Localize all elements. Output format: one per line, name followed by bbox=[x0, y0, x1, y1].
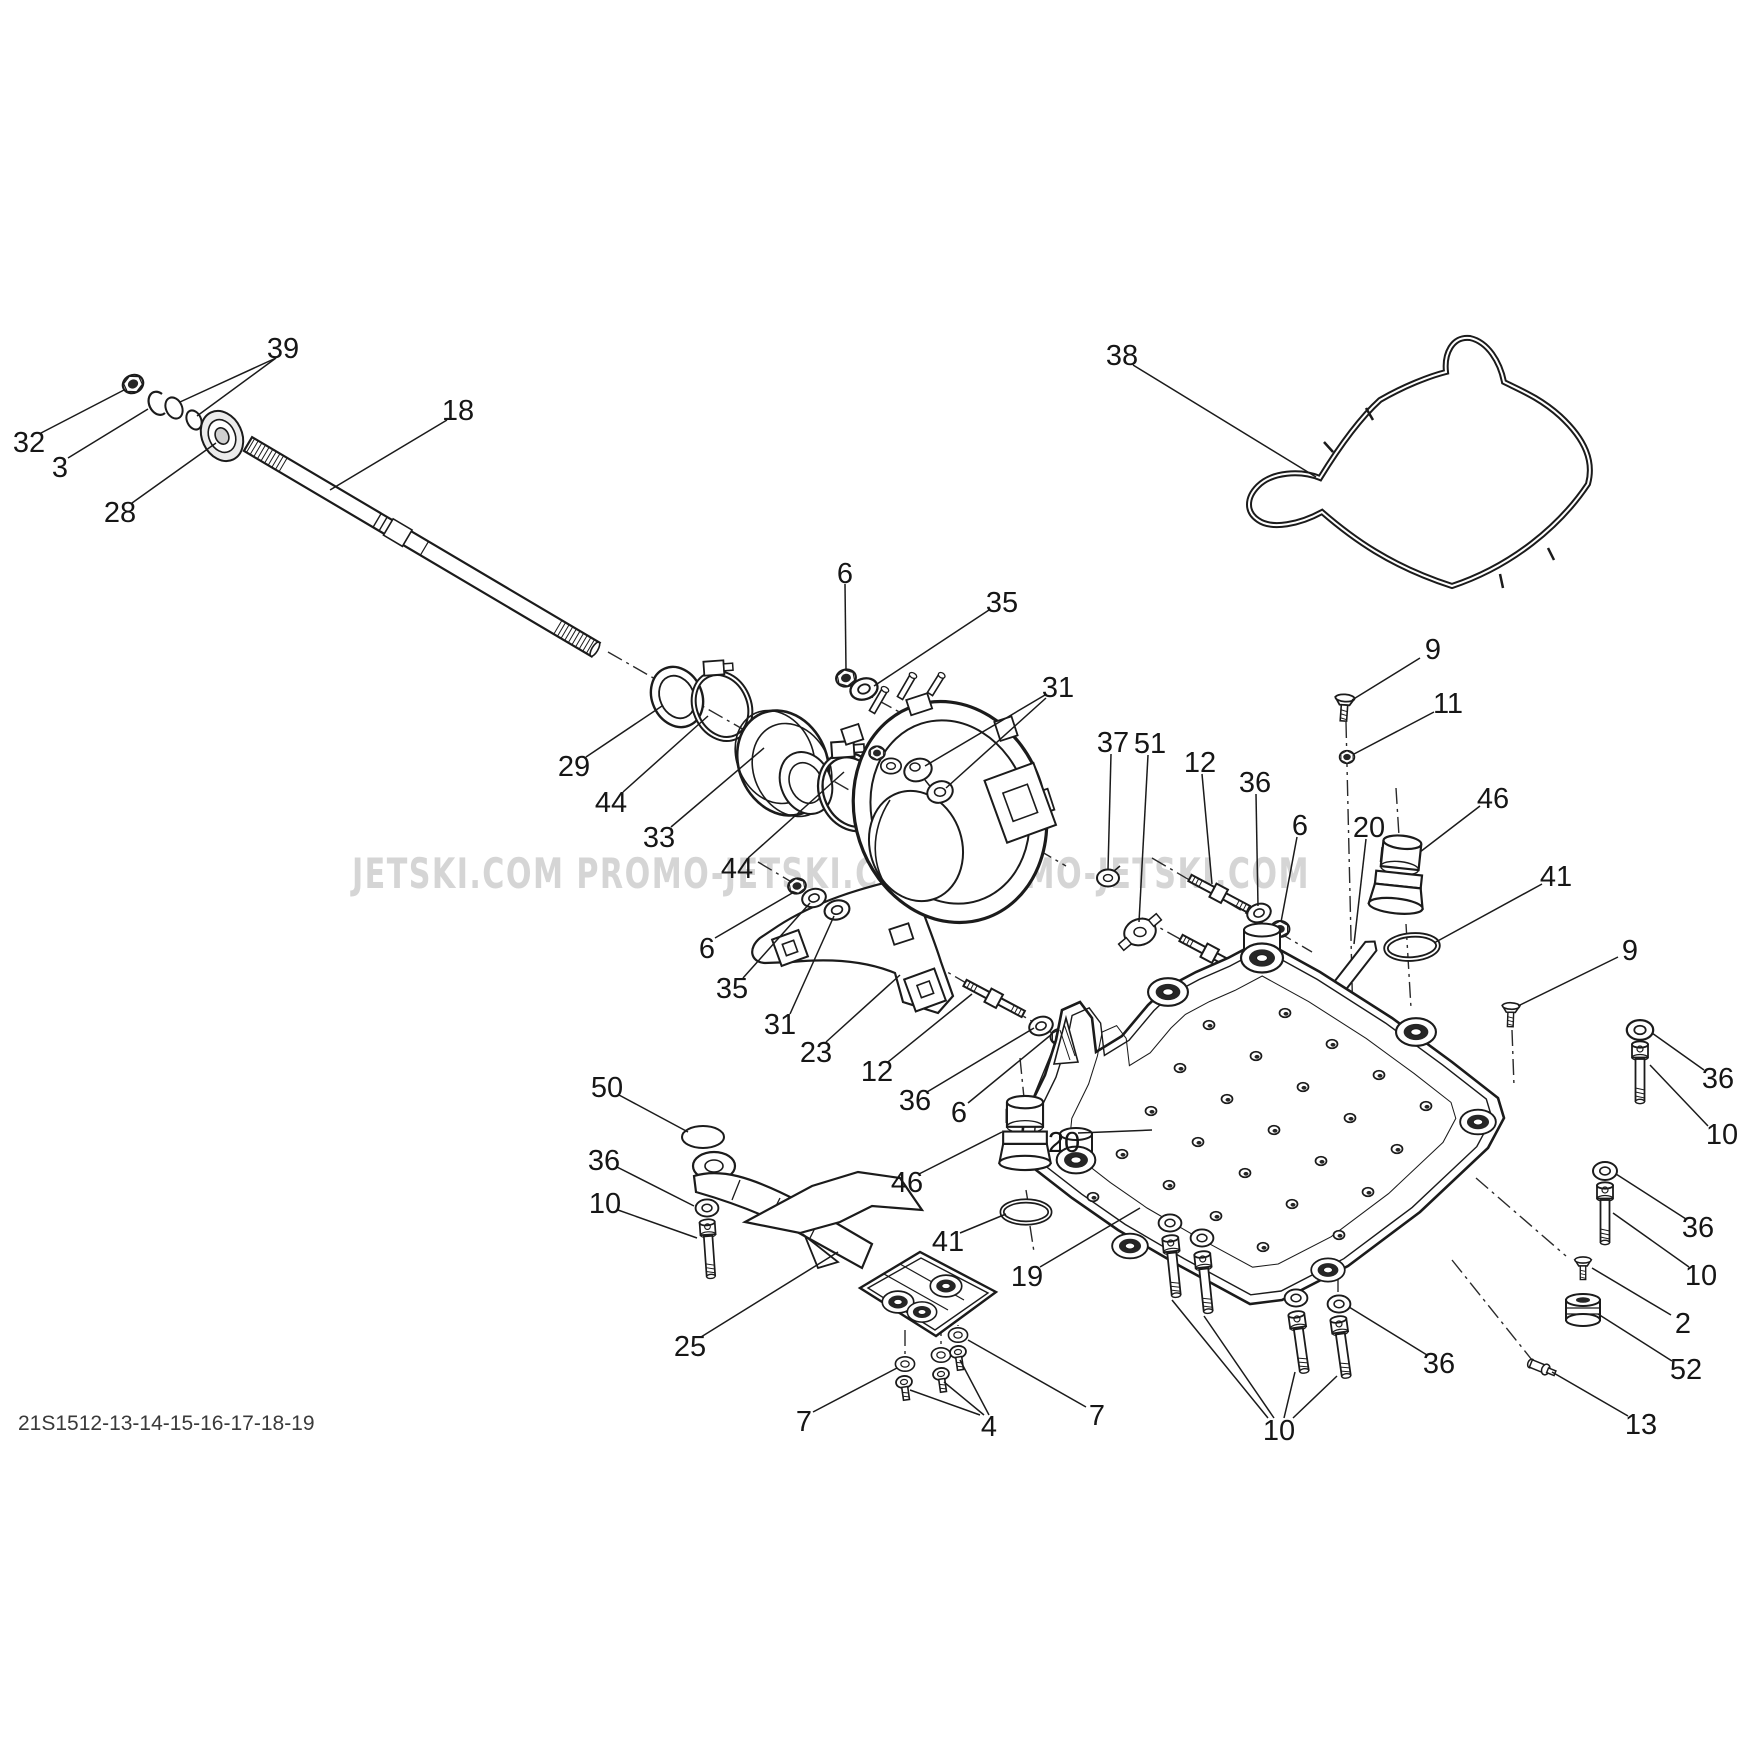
part-label-6: 6 bbox=[837, 558, 853, 590]
o-ring-41 bbox=[1385, 933, 1439, 961]
part-label-41: 41 bbox=[932, 1226, 964, 1258]
part-label-6: 6 bbox=[1292, 810, 1308, 842]
leader-line-46 bbox=[1420, 806, 1480, 852]
leader-line-25 bbox=[701, 1252, 838, 1337]
part-label-35: 35 bbox=[716, 973, 748, 1005]
leader-line-35 bbox=[874, 610, 989, 686]
part-label-31: 31 bbox=[1042, 672, 1074, 704]
washer-7b bbox=[948, 1328, 967, 1342]
part-label-32: 32 bbox=[13, 427, 45, 459]
part-label-52: 52 bbox=[1670, 1354, 1702, 1386]
screw-2 bbox=[1575, 1257, 1591, 1280]
part-label-7: 7 bbox=[796, 1406, 812, 1438]
leader-line-23 bbox=[826, 975, 900, 1042]
part-label-31: 31 bbox=[764, 1009, 796, 1041]
part-label-12: 12 bbox=[861, 1056, 893, 1088]
leader-line-6 bbox=[845, 584, 846, 670]
part-label-20: 20 bbox=[1353, 812, 1385, 844]
part-label-41: 41 bbox=[1540, 861, 1572, 893]
part-label-6: 6 bbox=[699, 933, 715, 965]
leader-line-10 bbox=[618, 1210, 697, 1238]
leader-line-39 bbox=[197, 358, 276, 416]
leader-line-10 bbox=[1284, 1372, 1295, 1418]
part-label-7: 7 bbox=[1089, 1400, 1105, 1432]
leader-line-36 bbox=[1349, 1307, 1427, 1355]
leader-line-10 bbox=[1172, 1300, 1268, 1418]
leader-line-38 bbox=[1133, 365, 1316, 477]
cap-50 bbox=[682, 1126, 724, 1148]
part-label-2: 2 bbox=[1675, 1308, 1691, 1340]
hose-fitting-46 bbox=[1368, 833, 1430, 916]
grommet-52 bbox=[1566, 1294, 1600, 1326]
washer-36-r1 bbox=[1627, 1020, 1653, 1040]
o-ring-41-center bbox=[1002, 1201, 1050, 1223]
leader-line-28 bbox=[132, 443, 216, 503]
leader-line-41 bbox=[1434, 884, 1542, 943]
leader-line-11 bbox=[1354, 712, 1434, 754]
bolt-10-r1 bbox=[1632, 1041, 1648, 1103]
leader-line-36 bbox=[1616, 1174, 1686, 1219]
washer-small bbox=[881, 758, 901, 773]
part-label-6: 6 bbox=[951, 1097, 967, 1129]
leader-line-41 bbox=[960, 1214, 1006, 1233]
part-label-51: 51 bbox=[1134, 728, 1166, 760]
screw-4b bbox=[932, 1367, 951, 1393]
screw-4c bbox=[949, 1345, 968, 1371]
leader-line-3 bbox=[68, 409, 148, 458]
leader-line-50 bbox=[619, 1095, 688, 1132]
leader-line-32 bbox=[41, 390, 124, 433]
part-label-9: 9 bbox=[1425, 634, 1441, 666]
part-label-29: 29 bbox=[558, 751, 590, 783]
leader-line-36 bbox=[617, 1167, 694, 1206]
leader-line-7 bbox=[968, 1340, 1086, 1407]
washer-mid bbox=[931, 1348, 950, 1362]
leader-line-10 bbox=[1293, 1376, 1337, 1418]
part-label-36: 36 bbox=[899, 1085, 931, 1117]
part-label-23: 23 bbox=[800, 1037, 832, 1069]
part-label-36: 36 bbox=[1702, 1063, 1734, 1095]
hose-fitting-46-center bbox=[999, 1096, 1050, 1170]
parts-diagram-svg: JETSKI.COM PROMO-JETSKI.COM PROMO-JETSKI… bbox=[0, 0, 1740, 1740]
diagram-canvas: JETSKI.COM PROMO-JETSKI.COM PROMO-JETSKI… bbox=[0, 0, 1740, 1740]
leader-line-10 bbox=[1204, 1316, 1274, 1418]
part-label-9: 9 bbox=[1622, 935, 1638, 967]
leader-line-39 bbox=[180, 358, 276, 402]
leader-line-9 bbox=[1352, 658, 1420, 700]
leader-line-52 bbox=[1598, 1314, 1672, 1361]
part-label-10: 10 bbox=[1706, 1119, 1738, 1151]
part-label-44: 44 bbox=[595, 787, 627, 819]
screw-4a bbox=[895, 1375, 914, 1401]
ride-plate-19 bbox=[1021, 924, 1504, 1305]
drive-shaft-18 bbox=[243, 436, 602, 659]
part-label-33: 33 bbox=[643, 822, 675, 854]
part-label-36: 36 bbox=[1239, 767, 1271, 799]
part-label-18: 18 bbox=[442, 395, 474, 427]
leader-line-2 bbox=[1592, 1268, 1671, 1315]
part-label-50: 50 bbox=[591, 1072, 623, 1104]
leader-line-44 bbox=[623, 716, 708, 792]
part-label-3: 3 bbox=[52, 452, 68, 484]
stud-12c bbox=[961, 976, 1026, 1020]
washer-36-bracket bbox=[696, 1199, 719, 1216]
leader-line-7 bbox=[813, 1368, 897, 1412]
part-label-25: 25 bbox=[674, 1331, 706, 1363]
part-label-37: 37 bbox=[1097, 727, 1129, 759]
cam-51 bbox=[1119, 914, 1162, 951]
part-label-4: 4 bbox=[981, 1411, 997, 1443]
plate-fasteners-right bbox=[1502, 1002, 1653, 1378]
leader-line-18 bbox=[330, 420, 447, 490]
part-label-19: 19 bbox=[1011, 1261, 1043, 1293]
part-label-12: 12 bbox=[1184, 747, 1216, 779]
leader-line-36 bbox=[927, 1028, 1034, 1092]
part-label-10: 10 bbox=[589, 1188, 621, 1220]
leader-line-9 bbox=[1518, 957, 1618, 1006]
part-label-36: 36 bbox=[588, 1145, 620, 1177]
part-label-46: 46 bbox=[891, 1167, 923, 1199]
nut-small bbox=[869, 746, 885, 760]
leader-line-46 bbox=[919, 1132, 1002, 1174]
screw-9-top bbox=[1334, 694, 1355, 722]
part-label-28: 28 bbox=[104, 497, 136, 529]
leader-line-20 bbox=[1354, 839, 1366, 944]
leader-line-13 bbox=[1552, 1372, 1628, 1416]
washer-36-r2 bbox=[1593, 1162, 1617, 1180]
bolt-10-r2 bbox=[1597, 1182, 1613, 1244]
footer-part-code: 21S1512-13-14-15-16-17-18-19 bbox=[18, 1412, 315, 1435]
part-label-35: 35 bbox=[986, 587, 1018, 619]
part-label-44: 44 bbox=[721, 853, 753, 885]
leader-line-29 bbox=[586, 706, 662, 757]
gasket-38 bbox=[1249, 338, 1590, 588]
part-label-36: 36 bbox=[1423, 1348, 1455, 1380]
leader-line-10 bbox=[1613, 1213, 1689, 1267]
part-label-46: 46 bbox=[1477, 783, 1509, 815]
bolt-10-bracket bbox=[699, 1219, 718, 1279]
shaft-nut-32 bbox=[120, 371, 147, 396]
part-label-11: 11 bbox=[1433, 688, 1463, 720]
watermark-text: JETSKI.COM PROMO-JETSKI.COM PROMO-JETSKI… bbox=[350, 849, 1310, 898]
shaft-seal-28 bbox=[193, 404, 251, 468]
fitting-13 bbox=[1526, 1357, 1557, 1378]
leader-line-36 bbox=[1652, 1033, 1704, 1070]
part-label-38: 38 bbox=[1106, 340, 1138, 372]
circlip-3 bbox=[149, 392, 165, 415]
bracket-end-plate bbox=[860, 1252, 996, 1336]
screw-9-plate bbox=[1502, 1002, 1520, 1027]
part-label-10: 10 bbox=[1685, 1260, 1717, 1292]
bracket-25-assembly bbox=[682, 1126, 996, 1401]
drive-shaft-assembly bbox=[120, 371, 603, 658]
leader-line-10 bbox=[1650, 1065, 1708, 1126]
nut-11 bbox=[1340, 751, 1355, 764]
part-label-20: 20 bbox=[1048, 1127, 1080, 1159]
part-label-39: 39 bbox=[267, 333, 299, 365]
washer-7a bbox=[895, 1357, 914, 1371]
part-label-36: 36 bbox=[1682, 1212, 1714, 1244]
part-label-13: 13 bbox=[1625, 1409, 1657, 1441]
part-label-10: 10 bbox=[1263, 1415, 1295, 1447]
